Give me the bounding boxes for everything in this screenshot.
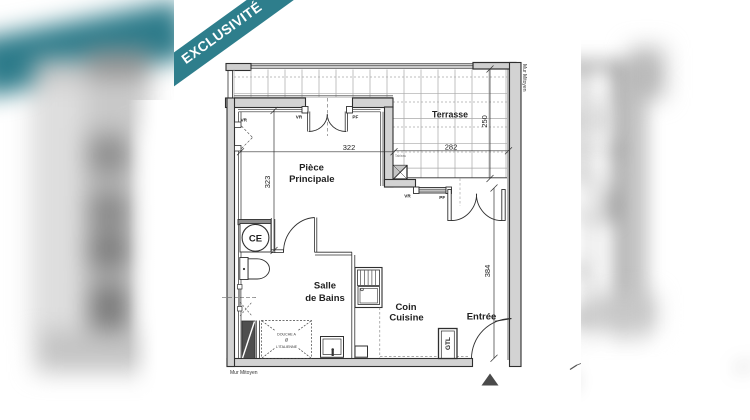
svg-text:VR: VR <box>241 117 248 122</box>
svg-text:Mur Mitoyen: Mur Mitoyen <box>521 64 527 92</box>
svg-text:Principale: Principale <box>289 174 334 185</box>
svg-text:Coin: Coin <box>395 302 416 313</box>
svg-text:Cuisine: Cuisine <box>389 313 423 324</box>
svg-text:250: 250 <box>480 115 489 128</box>
svg-text:Tableau: Tableau <box>395 154 406 158</box>
svg-text:Ø: Ø <box>285 338 289 343</box>
svg-text:Terrasse: Terrasse <box>432 110 468 120</box>
svg-text:322: 322 <box>343 143 356 152</box>
svg-text:Pièce: Pièce <box>299 163 324 174</box>
svg-text:EXCLUSIVITÉ: EXCLUSIVITÉ <box>178 0 264 67</box>
svg-text:Salle: Salle <box>314 281 336 292</box>
svg-text:Entrée: Entrée <box>467 311 497 322</box>
svg-text:VR: VR <box>404 194 411 199</box>
svg-text:PF: PF <box>352 114 358 119</box>
svg-text:GTL: GTL <box>445 337 452 350</box>
svg-text:DOUCHE A: DOUCHE A <box>277 332 296 336</box>
svg-text:282: 282 <box>445 142 458 151</box>
svg-text:Mur Mitoyen: Mur Mitoyen <box>230 370 258 376</box>
svg-text:de Bains: de Bains <box>305 293 345 304</box>
svg-text:VR: VR <box>296 114 303 119</box>
svg-text:323: 323 <box>263 176 272 189</box>
svg-text:PF: PF <box>439 195 445 200</box>
svg-text:L'ITALIENNE: L'ITALIENNE <box>276 345 298 349</box>
svg-text:384: 384 <box>483 265 492 278</box>
svg-text:CE: CE <box>249 233 262 244</box>
